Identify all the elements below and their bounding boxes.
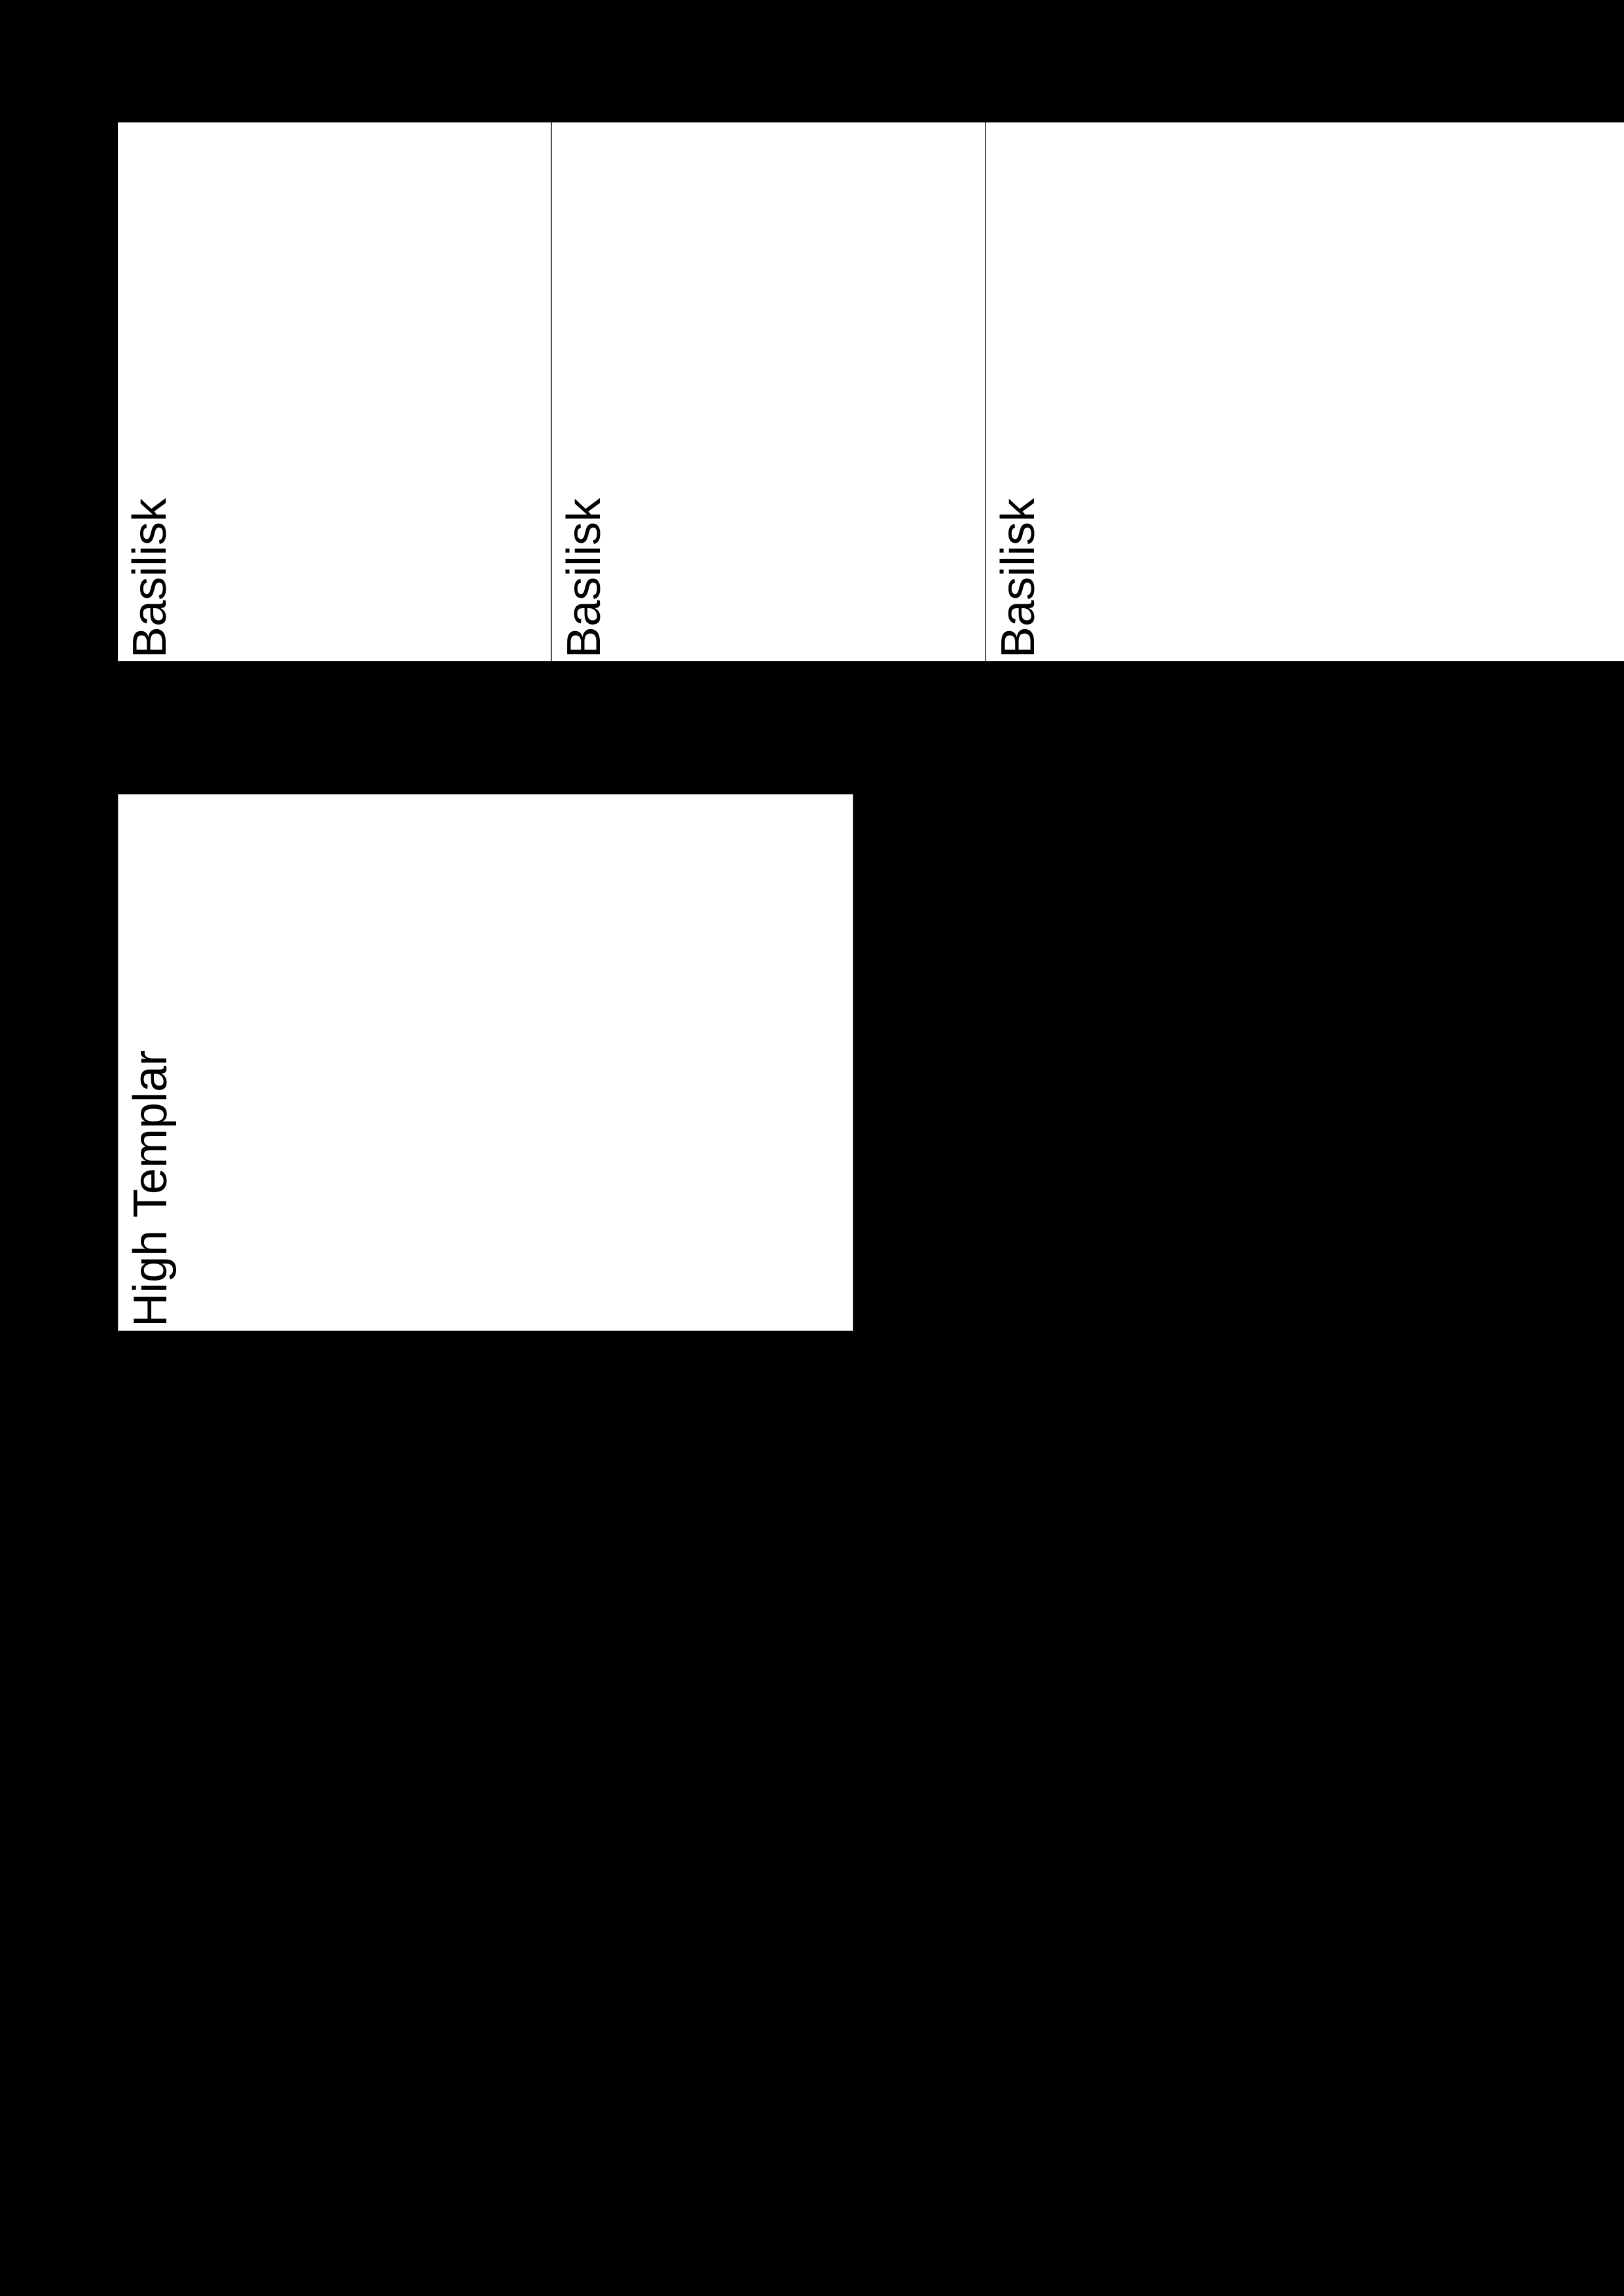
sheet-page: Basilisk Basilisk Basilisk High Templar	[0, 0, 1624, 2296]
card-basilisk-3: Basilisk	[985, 122, 1624, 661]
card-label-basilisk-3: Basilisk	[995, 498, 1042, 658]
card-strip-row: Basilisk Basilisk Basilisk	[118, 122, 1624, 661]
card-label-basilisk-2: Basilisk	[561, 498, 608, 658]
card-label-basilisk-1: Basilisk	[126, 498, 174, 658]
card-label-high-templar: High Templar	[127, 1050, 174, 1327]
card-high-templar: High Templar	[118, 794, 853, 1331]
card-basilisk-2: Basilisk	[551, 122, 985, 661]
card-basilisk-1: Basilisk	[118, 122, 551, 661]
